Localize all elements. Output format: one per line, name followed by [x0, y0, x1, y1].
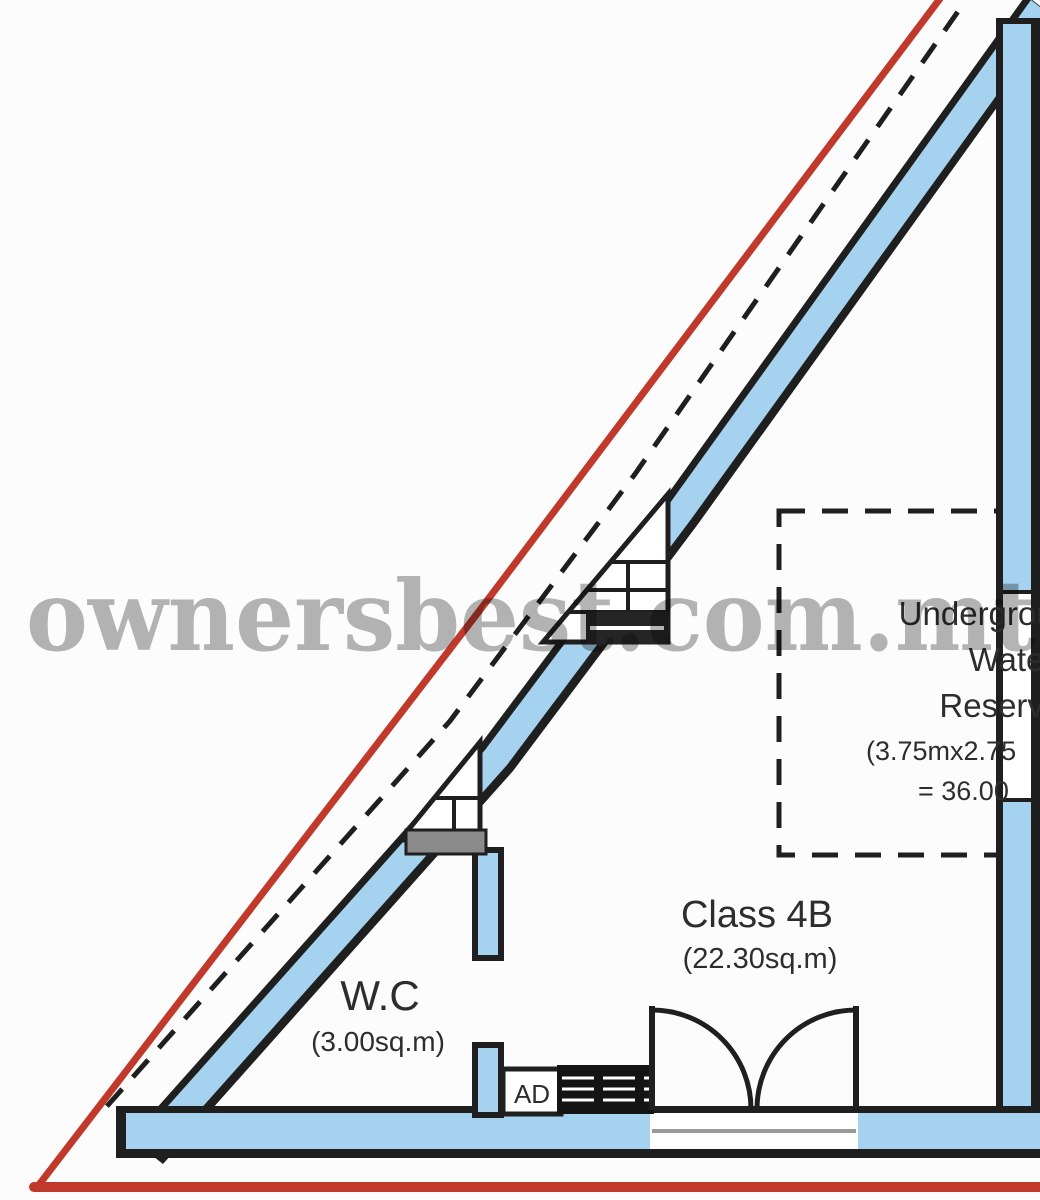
ad-duct-label: AD — [514, 1079, 550, 1109]
floor-plan-drawing: AD Class 4B (22.30sq.m) W.C (3.00sq.m) U… — [0, 0, 1040, 1200]
class4b-room-label: Class 4B — [681, 894, 833, 936]
wc-partition-upper — [475, 850, 501, 958]
watermark-text: ownersbest.com.mt — [26, 559, 1036, 673]
reservoir-dims-label: (3.75mx2.75 — [866, 736, 1016, 766]
class4b-area-label: (22.30sq.m) — [683, 943, 838, 975]
wc-area-label: (3.00sq.m) — [311, 1026, 445, 1057]
service-fixtures: AD — [503, 1065, 654, 1114]
bottom-wall-fill — [126, 1113, 1040, 1149]
window-lower-sill — [406, 830, 486, 854]
reservoir-volume-label: = 36.00 — [918, 776, 1009, 806]
wc-room-label: W.C — [340, 972, 419, 1019]
wc-partition-lower — [475, 1045, 501, 1115]
reservoir-label-line3: Reservoir — [939, 687, 1040, 724]
